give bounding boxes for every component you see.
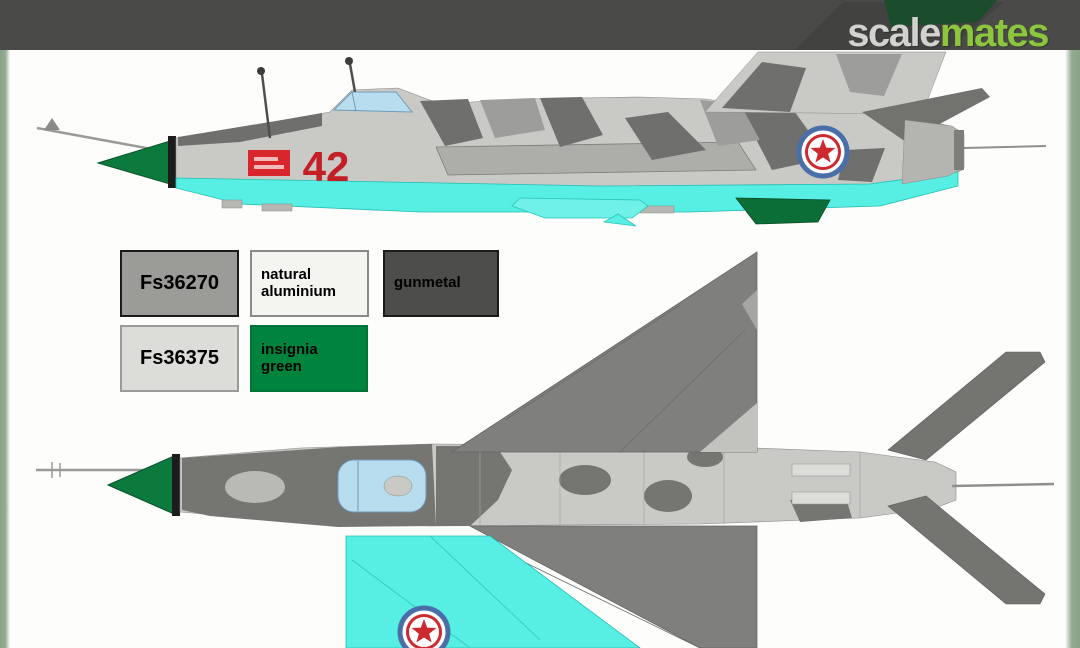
swatch-fs36270: Fs36270 [120, 250, 239, 317]
scalemates-logo[interactable]: scalemates [847, 13, 1048, 53]
roundel-underside [400, 608, 448, 648]
swatch-gunmetal: gunmetal [383, 250, 499, 317]
swatch-label: Fs36270 [140, 272, 219, 294]
swatch-label: gunmetal [394, 275, 461, 292]
plan-intake-ring [172, 454, 180, 516]
exhaust-side [902, 120, 1046, 184]
swatch-label: natural aluminium [261, 267, 358, 301]
tactical-number: 42 [303, 143, 350, 190]
logo-text-scale: scale [847, 11, 940, 55]
ventral-fin-green [736, 198, 830, 224]
roundel-side [799, 128, 847, 176]
tail-pitot [964, 146, 1046, 148]
red-slogan-banner [248, 150, 290, 176]
nose-cone-green [98, 141, 170, 184]
drop-tank [512, 198, 648, 226]
intake-ring [168, 136, 176, 188]
right-frame-strip [1065, 50, 1080, 648]
tail-spike [952, 484, 1054, 486]
canopy-plan [338, 460, 426, 512]
plan-nose-cone-green [108, 456, 174, 514]
wing-side [436, 142, 756, 175]
left-frame-strip [0, 50, 10, 648]
side-profile-view: 42 [37, 52, 1046, 226]
swatch-natural-aluminium: natural aluminium [250, 250, 369, 317]
swatch-label: Fs36375 [140, 347, 219, 369]
page: 42 [0, 0, 1080, 648]
logo-text-mates: mates [940, 11, 1048, 55]
nose-pitot-boom [37, 118, 168, 152]
swatch-fs36375: Fs36375 [120, 325, 239, 392]
swatch-insignia-green: insignia green [250, 325, 368, 392]
swatch-label: insignia green [261, 342, 357, 376]
camouflage-profile-artwork: 42 [0, 0, 1080, 648]
